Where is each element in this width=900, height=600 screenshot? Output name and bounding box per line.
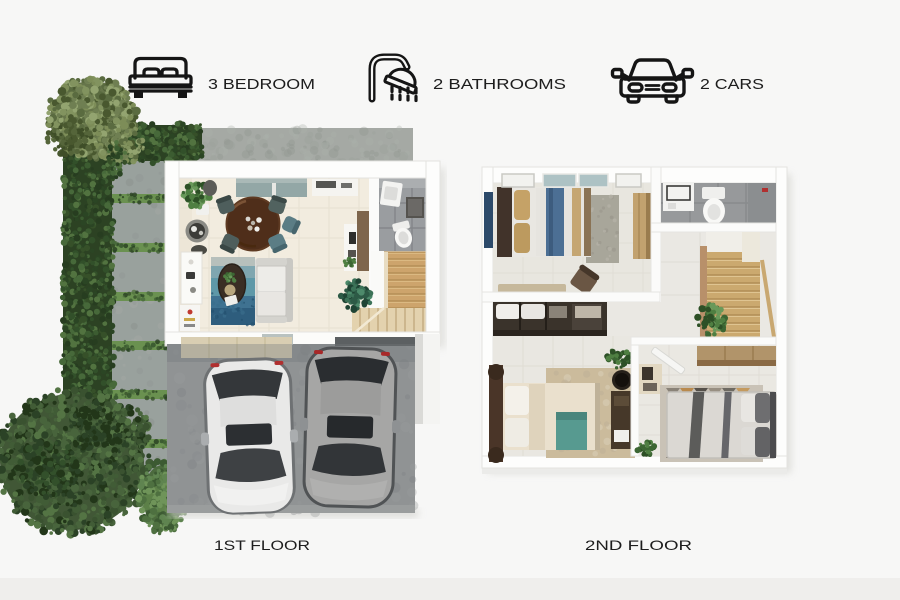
svg-text:2ND FLOOR: 2ND FLOOR <box>585 537 692 553</box>
svg-text:3 BEDROOM: 3 BEDROOM <box>208 76 315 93</box>
svg-text:2 CARS: 2 CARS <box>700 76 764 93</box>
svg-text:2 BATHROOMS: 2 BATHROOMS <box>433 76 566 93</box>
svg-text:1ST FLOOR: 1ST FLOOR <box>214 537 310 553</box>
